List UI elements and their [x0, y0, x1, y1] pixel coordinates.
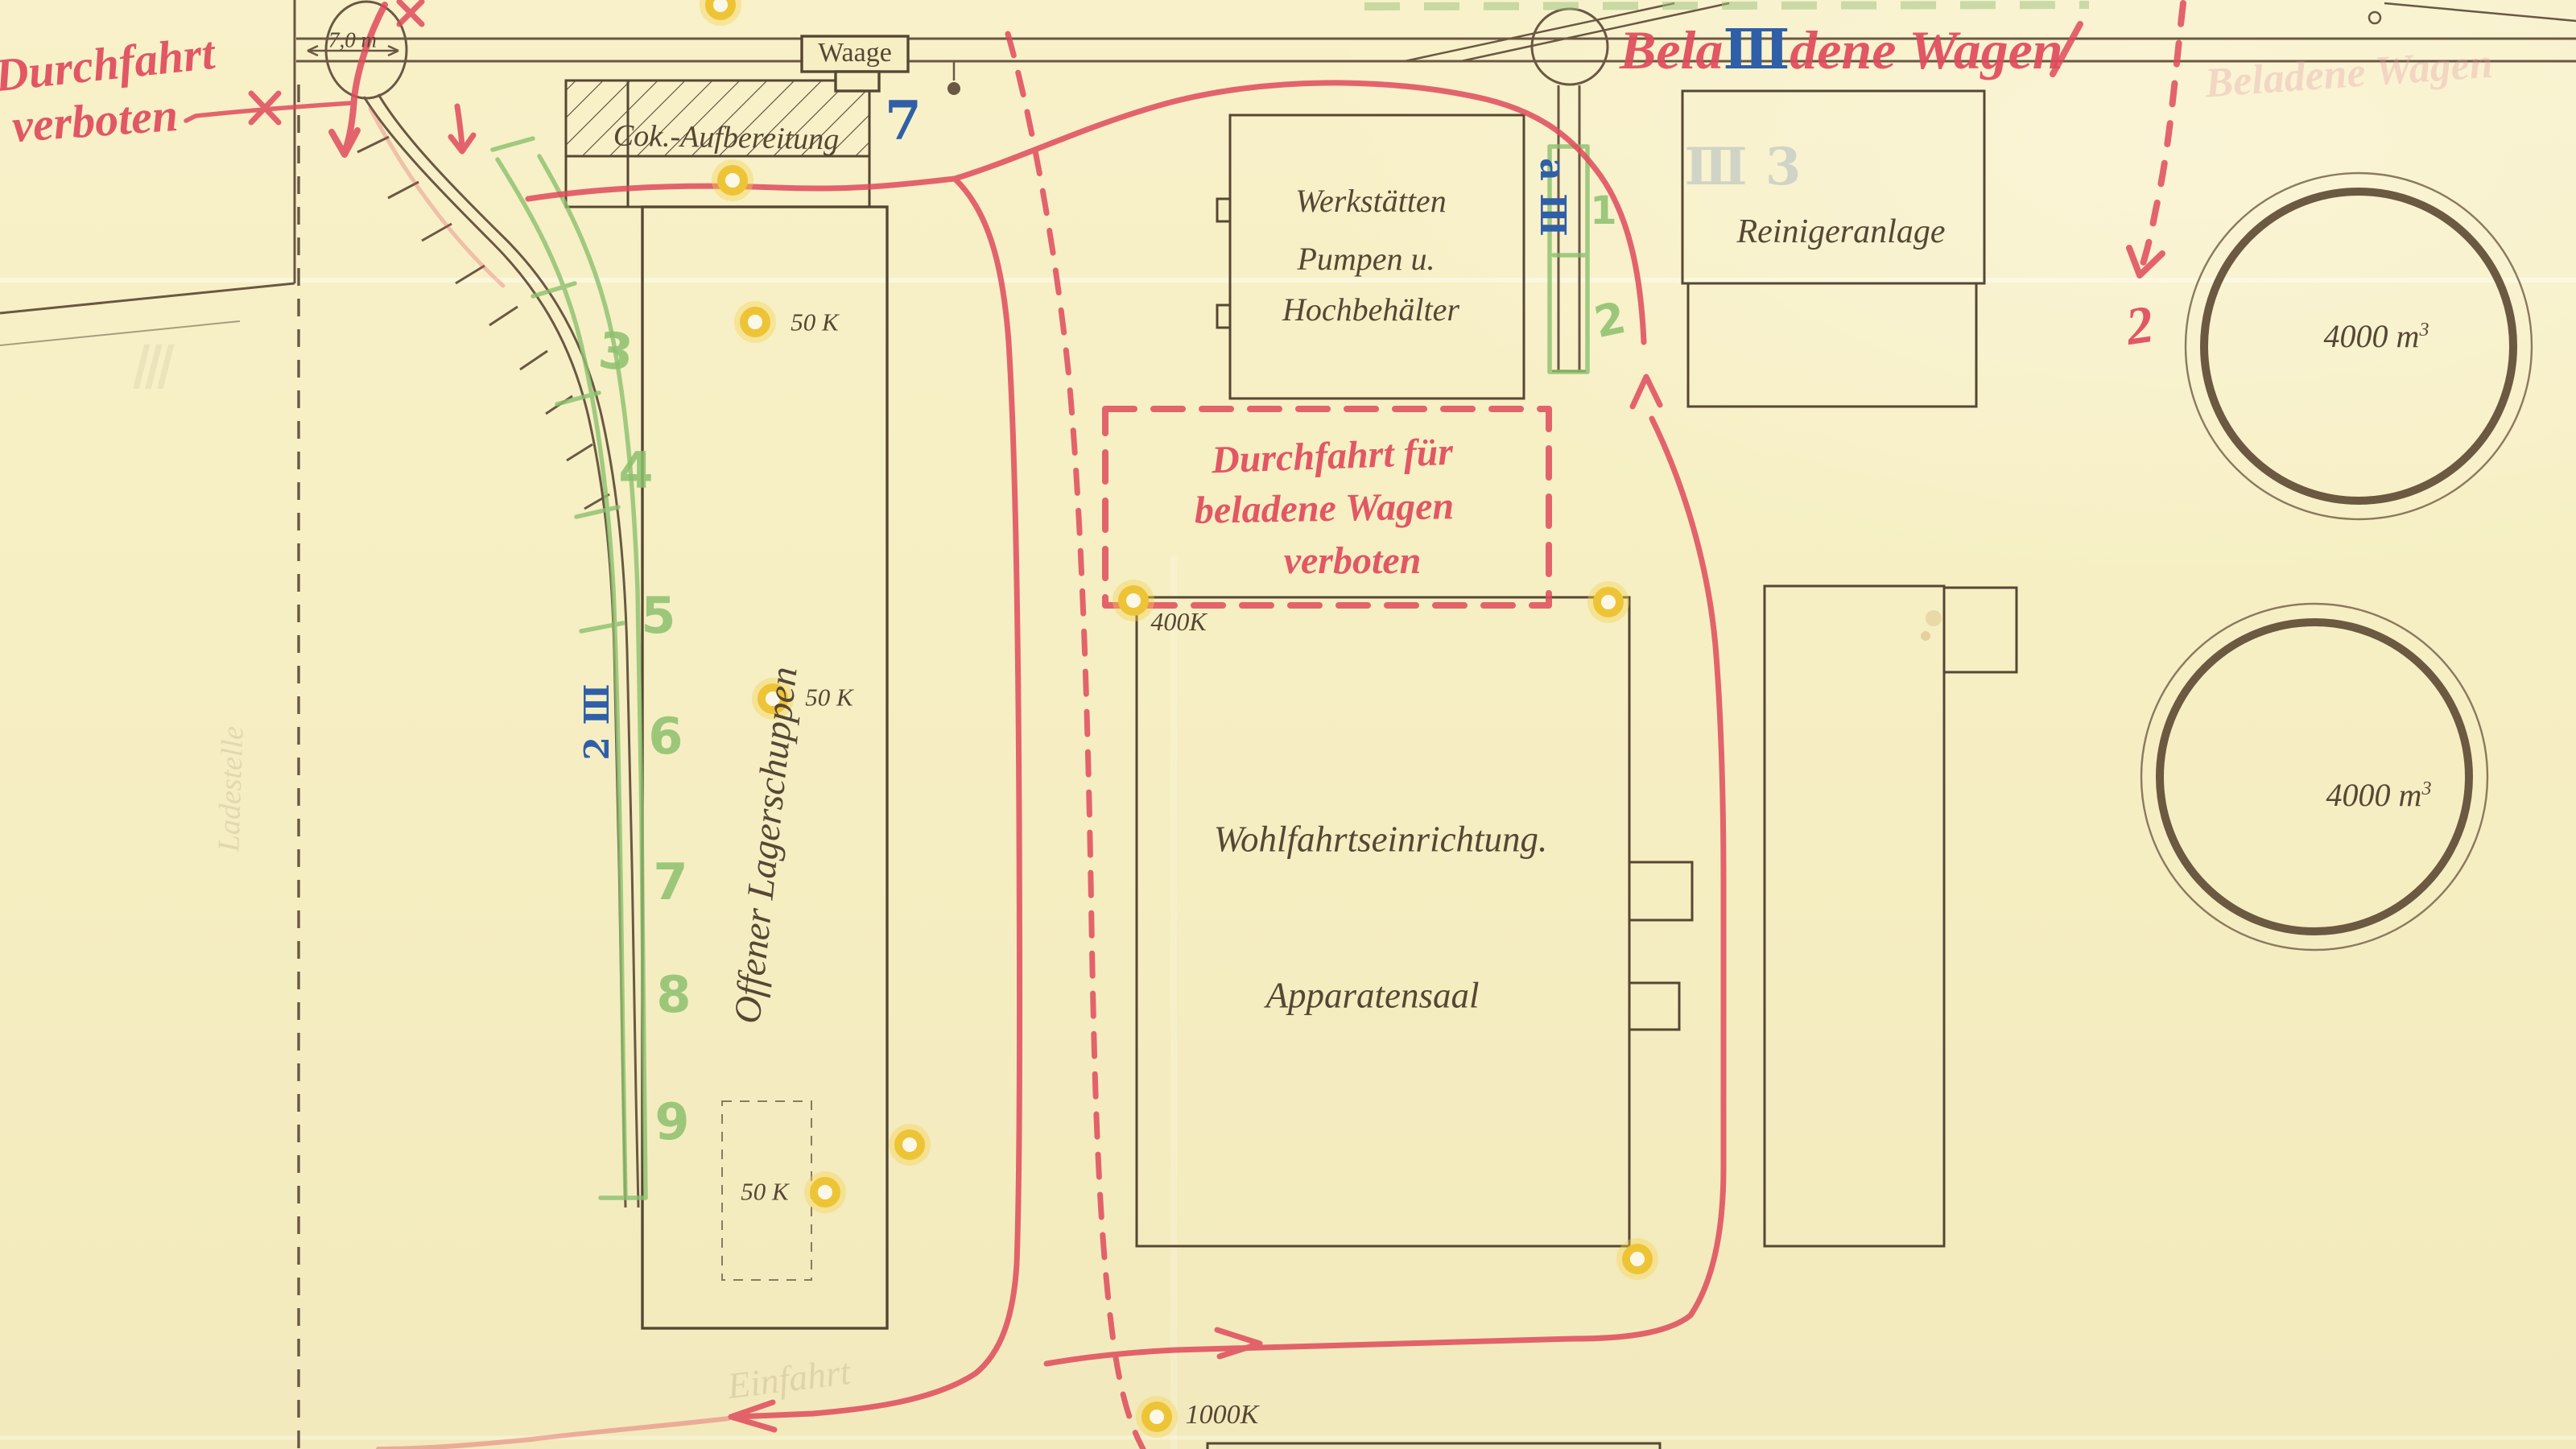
red-small-down-arrow	[451, 106, 473, 151]
curved-siding-track	[357, 94, 638, 1207]
reinigeranlage-label: Reinigeranlage	[1737, 215, 1946, 249]
tank1-sup: 3	[2419, 320, 2429, 341]
beladene-roman-insert: Ⅲ	[1723, 18, 1790, 82]
main-rails	[296, 3, 2576, 61]
green-number-8: 8	[656, 970, 691, 1020]
green-number-4: 4	[618, 446, 653, 496]
tank2-volume: 4000 m	[2326, 777, 2422, 813]
blue-track-mark-2-3: 2 Ⅲ	[580, 684, 614, 761]
tank2-sup: 3	[2421, 778, 2431, 799]
green-track-highlight	[493, 138, 646, 1198]
green-erased-scribble	[1364, 5, 2089, 6]
werkstaetten-label-2: Pumpen u.	[1297, 243, 1435, 275]
beladene-post: dene Wagen	[1790, 19, 2062, 80]
scanned-site-plan: Durchfahrt verboten 7,0 m Waage Cok.-Auf…	[0, 0, 2576, 1449]
bottom-building-edge	[1207, 1443, 1660, 1449]
red-dashed-branch	[2141, 3, 2183, 269]
yellow-marker-rings	[700, 0, 1658, 1438]
green-number-6: 6	[648, 712, 683, 762]
capacity-50k-a: 50 K	[791, 310, 838, 335]
switch-dot	[2369, 12, 2380, 23]
green-number-7: 7	[653, 857, 687, 907]
signal-post	[947, 62, 960, 95]
pencil-roman-iii: Ⅲ	[127, 338, 169, 399]
green-number-5: 5	[641, 591, 675, 641]
wohlfahrt-label: Wohlfahrtseinrichtung.	[1214, 822, 1548, 858]
werkstaetten-label-3: Hochbehälter	[1282, 294, 1459, 326]
dashed-box-text-2: beladene Wagen	[1195, 487, 1455, 530]
beladene-pre: Bela	[1620, 19, 1723, 80]
ghost-blue-iii3: Ⅲ 3	[1685, 142, 1802, 193]
waage-label: Waage	[818, 39, 892, 67]
gas-holder-2	[2141, 604, 2487, 950]
capacity-50k-c: 50 K	[741, 1179, 788, 1204]
wohlfahrt-building	[1137, 597, 1692, 1246]
dimension-label: 7,0 m	[328, 30, 377, 52]
capacity-1000k: 1000K	[1186, 1402, 1259, 1429]
cok-aufbereitung-label: Cok.-Aufbereitung	[613, 121, 840, 155]
beladene-wagen-note: BelaⅢdene Wagen	[1620, 23, 2063, 77]
turntable-right	[1532, 9, 1608, 85]
pencil-ladestelle: Ladestelle	[213, 725, 248, 852]
property-boundary	[0, 0, 299, 1449]
capacity-400k: 400K	[1150, 609, 1206, 634]
green-number-3: 3	[597, 325, 635, 378]
dashed-box-text-1: Durchfahrt für	[1211, 433, 1454, 480]
capacity-50k-b: 50 K	[805, 685, 852, 710]
gas-holder-1-label: 4000 m3	[2324, 320, 2429, 353]
green-track-number-1: 1	[1590, 192, 1616, 230]
blue-track-number-7: 7	[885, 94, 922, 147]
red-route-fade-tail	[378, 1418, 729, 1449]
red-x-mark-top	[399, 2, 422, 24]
tall-right-building	[1765, 586, 2017, 1246]
tank1-volume: 4000 m	[2324, 318, 2420, 354]
red-dashed-road-line	[1008, 34, 1143, 1449]
apparatensaal-label: Apparatensaal	[1266, 978, 1480, 1014]
gas-holder-2-label: 4000 m3	[2326, 779, 2432, 811]
red-up-arrowhead	[1633, 377, 1660, 407]
dashed-box-text-3: verboten	[1284, 542, 1422, 580]
blue-track-mark-a3: a Ⅲ	[1534, 158, 1570, 236]
site-plan-drawing	[0, 0, 2576, 1449]
red-right-arrowhead	[1217, 1330, 1260, 1356]
green-number-9: 9	[654, 1097, 689, 1147]
note-durchfahrt-verboten-line2: verboten	[10, 92, 180, 150]
werkstaetten-label-1: Werkstätten	[1295, 185, 1446, 217]
